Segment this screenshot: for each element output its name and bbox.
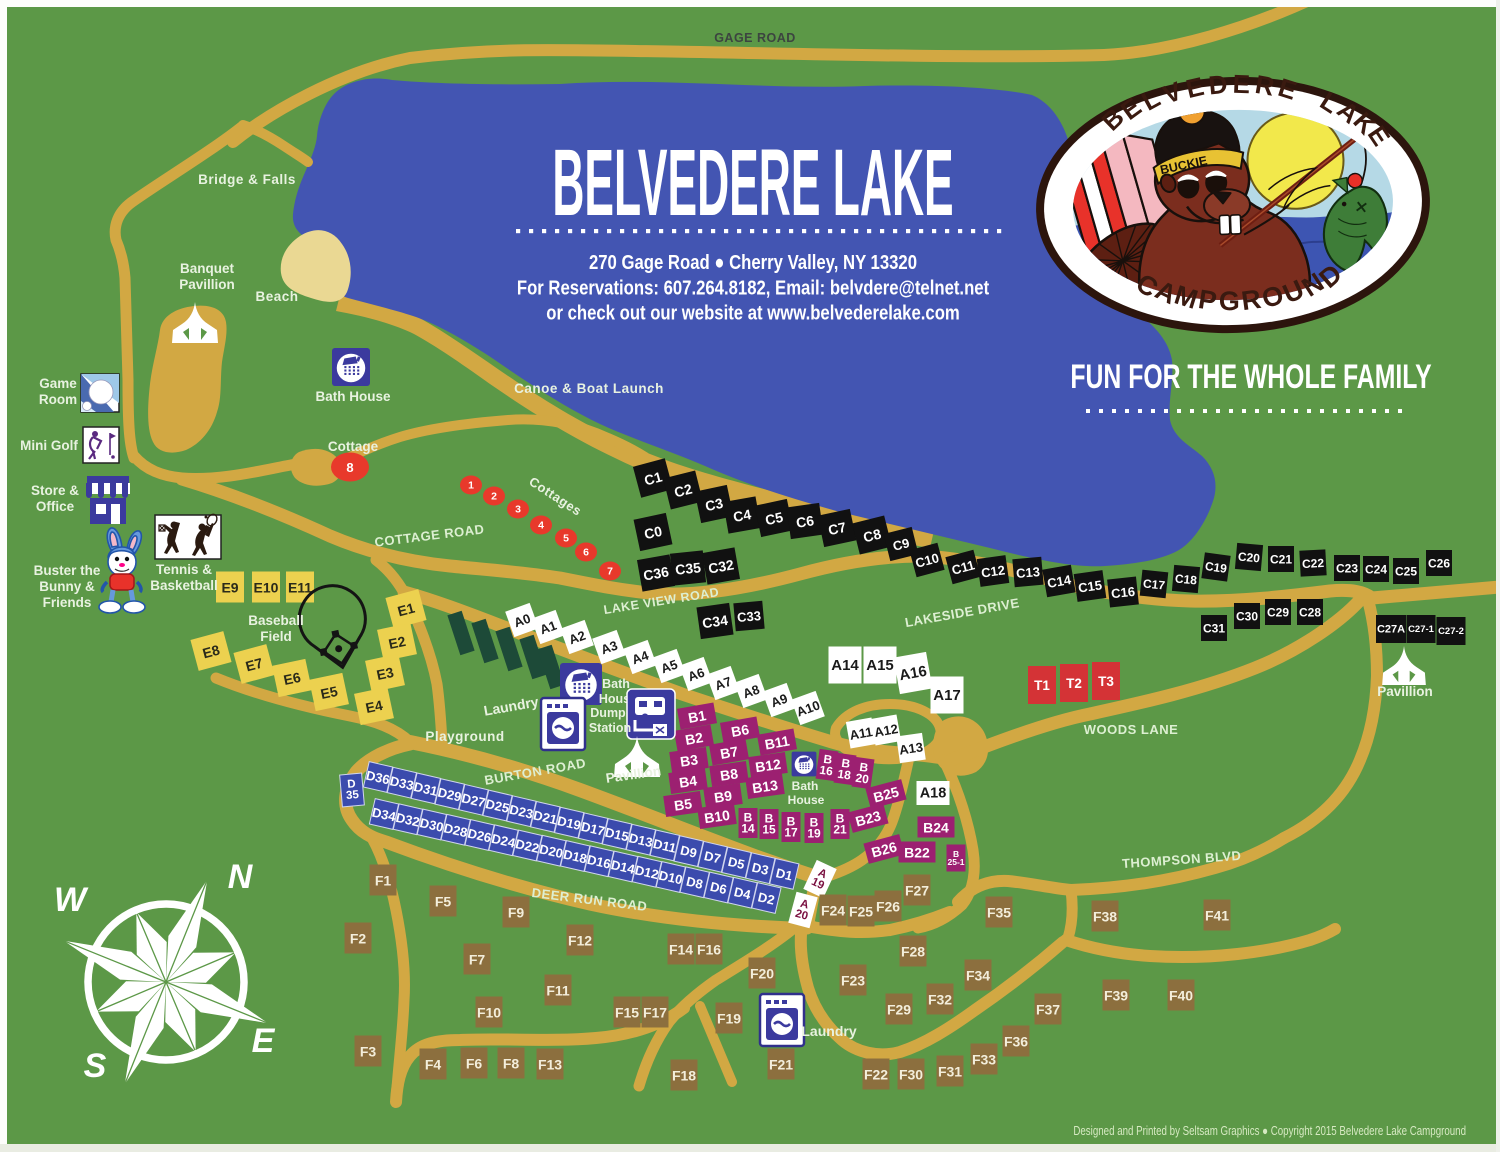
- svg-text:8: 8: [346, 460, 353, 475]
- svg-text:B24: B24: [923, 820, 949, 836]
- svg-text:B9: B9: [713, 787, 733, 805]
- svg-text:E10: E10: [254, 580, 279, 596]
- svg-text:F12: F12: [568, 933, 592, 949]
- svg-text:Tennis &: Tennis &: [156, 562, 212, 577]
- svg-text:F30: F30: [899, 1067, 923, 1083]
- svg-text:17: 17: [784, 826, 798, 840]
- svg-text:1: 1: [468, 480, 474, 492]
- svg-text:For Reservations: 607.264.8182: For Reservations: 607.264.8182, Email: b…: [517, 276, 989, 299]
- svg-text:F26: F26: [876, 899, 900, 915]
- svg-text:18: 18: [837, 767, 852, 783]
- svg-text:F39: F39: [1104, 988, 1128, 1004]
- svg-text:C18: C18: [1174, 572, 1197, 588]
- svg-text:A18: A18: [920, 786, 947, 802]
- svg-text:B1: B1: [687, 707, 708, 726]
- svg-text:C29: C29: [1267, 606, 1289, 620]
- svg-text:C6: C6: [795, 512, 815, 530]
- svg-text:Bath House: Bath House: [315, 389, 391, 404]
- svg-text:C24: C24: [1365, 563, 1387, 577]
- svg-text:C30: C30: [1236, 610, 1258, 624]
- svg-text:F9: F9: [508, 905, 525, 921]
- svg-text:5: 5: [563, 533, 569, 545]
- svg-text:B6: B6: [730, 721, 751, 740]
- svg-text:FUN FOR THE WHOLE FAMILY: FUN FOR THE WHOLE FAMILY: [1070, 358, 1431, 396]
- svg-text:Pavillion: Pavillion: [179, 277, 235, 292]
- svg-text:F38: F38: [1093, 909, 1117, 925]
- svg-text:Bath: Bath: [792, 779, 819, 793]
- svg-text:F3: F3: [360, 1044, 377, 1060]
- svg-text:B8: B8: [719, 765, 739, 783]
- svg-text:F14: F14: [669, 942, 693, 958]
- svg-text:Bridge & Falls: Bridge & Falls: [198, 172, 296, 187]
- svg-text:C26: C26: [1428, 557, 1450, 571]
- svg-text:Bath: Bath: [602, 677, 630, 691]
- svg-text:or check out our website at ww: or check out our website at www.belveder…: [546, 301, 960, 324]
- svg-text:F36: F36: [1004, 1034, 1028, 1050]
- svg-text:Friends: Friends: [43, 595, 92, 610]
- svg-text:F6: F6: [466, 1056, 483, 1072]
- svg-text:6: 6: [583, 547, 589, 559]
- svg-text:F15: F15: [615, 1005, 639, 1021]
- svg-text:Buster the: Buster the: [34, 563, 101, 578]
- svg-text:Basketball: Basketball: [150, 578, 218, 593]
- svg-text:Field: Field: [260, 629, 292, 644]
- svg-text:BELVEDERE LAKE: BELVEDERE LAKE: [552, 129, 953, 235]
- svg-text:B4: B4: [678, 772, 698, 790]
- svg-text:21: 21: [833, 823, 847, 837]
- svg-text:F28: F28: [901, 944, 925, 960]
- svg-text:T3: T3: [1098, 674, 1114, 689]
- svg-text:14: 14: [741, 822, 755, 836]
- svg-text:15: 15: [762, 823, 776, 837]
- svg-text:F33: F33: [972, 1052, 996, 1068]
- svg-text:C13: C13: [1016, 564, 1041, 581]
- svg-text:GAGE ROAD: GAGE ROAD: [714, 31, 796, 45]
- svg-text:Cottage: Cottage: [328, 439, 379, 454]
- svg-text:Banquet: Banquet: [180, 261, 235, 276]
- svg-text:C21: C21: [1270, 553, 1292, 567]
- svg-text:Canoe & Boat Launch: Canoe & Boat Launch: [514, 381, 664, 396]
- svg-text:F23: F23: [841, 973, 865, 989]
- svg-text:Pavillion: Pavillion: [1377, 684, 1433, 699]
- svg-text:C35: C35: [674, 559, 701, 578]
- svg-text:C28: C28: [1299, 606, 1321, 620]
- svg-text:G: G: [1219, 286, 1240, 316]
- svg-text:F41: F41: [1205, 908, 1229, 924]
- svg-text:3: 3: [515, 504, 521, 516]
- svg-text:Playground: Playground: [425, 729, 504, 744]
- svg-text:C25: C25: [1395, 565, 1417, 579]
- svg-text:Baseball: Baseball: [248, 613, 304, 628]
- svg-text:F7: F7: [469, 952, 486, 968]
- svg-text:F40: F40: [1169, 988, 1193, 1004]
- svg-text:C17: C17: [1142, 576, 1166, 592]
- svg-text:35: 35: [346, 789, 360, 802]
- svg-text:W: W: [54, 881, 89, 919]
- svg-text:E9: E9: [221, 580, 238, 596]
- svg-text:25-1: 25-1: [947, 857, 964, 867]
- svg-text:4: 4: [538, 520, 544, 532]
- svg-text:C23: C23: [1336, 562, 1358, 576]
- svg-text:C27-1: C27-1: [1408, 624, 1435, 635]
- svg-text:F10: F10: [477, 1005, 501, 1021]
- svg-text:C22: C22: [1302, 556, 1325, 571]
- svg-text:F20: F20: [750, 966, 774, 982]
- svg-text:Beach: Beach: [255, 289, 298, 304]
- svg-text:F22: F22: [864, 1067, 888, 1083]
- svg-text:20: 20: [855, 771, 870, 787]
- svg-text:F21: F21: [769, 1057, 793, 1073]
- svg-text:Game: Game: [39, 376, 77, 391]
- svg-text:B3: B3: [679, 751, 699, 769]
- svg-text:F25: F25: [849, 904, 873, 920]
- svg-text:S: S: [84, 1047, 107, 1085]
- svg-text:A14: A14: [831, 657, 859, 674]
- svg-text:F24: F24: [821, 903, 845, 919]
- svg-text:A17: A17: [933, 687, 961, 704]
- svg-text:Bunny &: Bunny &: [39, 579, 95, 594]
- svg-text:F16: F16: [697, 942, 721, 958]
- svg-text:E11: E11: [288, 580, 312, 596]
- svg-text:B7: B7: [719, 743, 740, 762]
- svg-text:F35: F35: [987, 905, 1011, 921]
- svg-text:E: E: [1232, 69, 1250, 100]
- svg-text:F13: F13: [538, 1057, 562, 1073]
- svg-text:C27A: C27A: [1377, 624, 1405, 636]
- svg-text:C27-2: C27-2: [1438, 626, 1464, 637]
- svg-text:Dump: Dump: [590, 706, 626, 720]
- svg-text:B5: B5: [673, 795, 693, 813]
- svg-text:House: House: [788, 793, 825, 807]
- svg-text:WOODS LANE: WOODS LANE: [1084, 722, 1179, 737]
- svg-text:16: 16: [819, 763, 834, 779]
- svg-text:Store &: Store &: [31, 483, 79, 498]
- svg-text:Office: Office: [36, 499, 75, 514]
- svg-text:F34: F34: [966, 968, 990, 984]
- svg-text:D: D: [1207, 69, 1229, 101]
- svg-text:C31: C31: [1203, 622, 1225, 636]
- svg-text:7: 7: [607, 566, 613, 578]
- svg-text:Designed and Printed by Seltsa: Designed and Printed by Seltsam Graphics…: [1073, 1125, 1466, 1138]
- svg-text:F29: F29: [887, 1002, 911, 1018]
- svg-text:C16: C16: [1110, 584, 1135, 601]
- svg-text:F2: F2: [350, 931, 367, 947]
- svg-text:F27: F27: [905, 883, 929, 899]
- svg-text:F37: F37: [1036, 1002, 1060, 1018]
- svg-text:C33: C33: [737, 608, 762, 625]
- svg-text:F19: F19: [717, 1011, 741, 1027]
- svg-text:F4: F4: [425, 1057, 442, 1073]
- svg-text:Laundry: Laundry: [801, 1023, 856, 1039]
- svg-text:Station: Station: [589, 721, 631, 735]
- svg-text:F5: F5: [435, 894, 452, 910]
- svg-text:F11: F11: [546, 983, 570, 999]
- svg-text:F32: F32: [928, 992, 952, 1008]
- svg-text:F1: F1: [375, 873, 392, 889]
- svg-text:A15: A15: [866, 657, 894, 674]
- svg-text:2: 2: [491, 491, 497, 503]
- svg-text:19: 19: [807, 827, 821, 841]
- svg-text:N: N: [228, 858, 254, 896]
- svg-text:E: E: [252, 1022, 276, 1060]
- svg-text:T2: T2: [1066, 676, 1082, 691]
- svg-text:T1: T1: [1034, 678, 1050, 693]
- svg-text:F17: F17: [643, 1005, 667, 1021]
- svg-text:B22: B22: [904, 845, 930, 861]
- svg-text:F8: F8: [503, 1056, 520, 1072]
- svg-text:F31: F31: [938, 1064, 962, 1080]
- svg-text:B2: B2: [684, 729, 705, 748]
- svg-text:Mini Golf: Mini Golf: [20, 438, 78, 453]
- svg-text:Room: Room: [39, 392, 77, 407]
- svg-text:C20: C20: [1237, 550, 1260, 566]
- svg-text:C4: C4: [732, 506, 753, 525]
- svg-text:F18: F18: [672, 1068, 696, 1084]
- svg-text:270 Gage Road ● Cherry Valley,: 270 Gage Road ● Cherry Valley, NY 13320: [589, 250, 917, 273]
